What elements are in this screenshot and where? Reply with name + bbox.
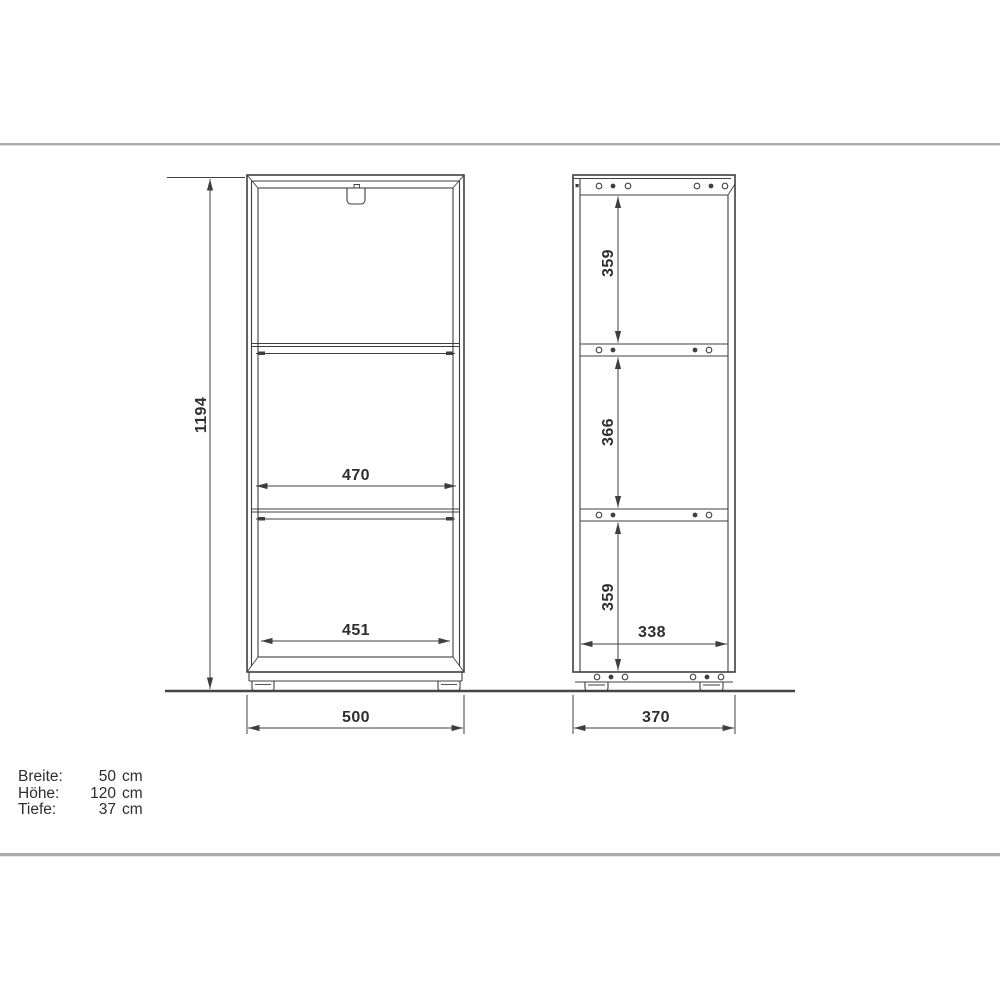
handle-cutout xyxy=(347,185,365,205)
dim-upper-inner-width: 470 xyxy=(256,467,456,486)
dim-label-middle-section: 366 xyxy=(600,418,617,446)
top-panel-holes xyxy=(576,183,728,189)
shelf-2 xyxy=(252,509,460,521)
dim-label-upper-inner-width: 470 xyxy=(342,467,370,484)
side-shelf-1 xyxy=(580,344,728,356)
technical-drawing-page: 1194 470 451 500 xyxy=(0,0,1000,1000)
spec-label: Breite: xyxy=(18,769,82,786)
spec-value: 50 xyxy=(82,769,116,786)
dim-height: 1194 xyxy=(167,178,245,690)
dim-label-outer-width: 500 xyxy=(342,709,370,726)
dim-label-height: 1194 xyxy=(193,397,210,433)
dim-middle-section: 366 xyxy=(600,358,618,508)
dim-top-section: 359 xyxy=(600,197,618,343)
dim-label-lower-inner-width: 451 xyxy=(342,622,370,639)
dim-lower-inner-width: 451 xyxy=(261,622,450,641)
side-view xyxy=(573,175,735,691)
spec-row-width: Breite: 50 cm xyxy=(18,769,143,786)
spec-unit: cm xyxy=(122,802,143,819)
dimensions-summary: Breite: 50 cm Höhe: 120 cm Tiefe: 37 cm xyxy=(18,769,143,819)
front-feet xyxy=(252,681,460,691)
spec-label: Tiefe: xyxy=(18,802,82,819)
side-bottom-panel xyxy=(575,674,733,682)
front-dimensions: 1194 470 451 500 xyxy=(167,178,464,735)
front-view xyxy=(247,175,464,691)
spec-row-depth: Tiefe: 37 cm xyxy=(18,802,143,819)
dim-outer-depth: 370 xyxy=(573,695,735,734)
spec-row-height: Höhe: 120 cm xyxy=(18,786,143,803)
dim-label-bottom-section: 359 xyxy=(600,583,617,611)
dim-bottom-section: 359 xyxy=(600,523,618,671)
spec-value: 37 xyxy=(82,802,116,819)
dim-label-outer-depth: 370 xyxy=(642,709,670,726)
side-feet xyxy=(585,682,723,691)
side-shelf-2 xyxy=(580,509,728,521)
spec-value: 120 xyxy=(82,786,116,803)
spec-unit: cm xyxy=(122,786,143,803)
dim-label-inner-depth: 338 xyxy=(638,624,666,641)
spec-label: Höhe: xyxy=(18,786,82,803)
cabinet-dimension-drawing: 1194 470 451 500 xyxy=(0,0,1000,1000)
shelf-1 xyxy=(252,344,460,356)
dim-label-top-section: 359 xyxy=(600,249,617,277)
spec-unit: cm xyxy=(122,769,143,786)
dim-outer-width: 500 xyxy=(247,695,464,734)
dim-inner-depth: 338 xyxy=(581,624,727,644)
side-dimensions: 359 366 359 338 370 xyxy=(573,197,735,735)
